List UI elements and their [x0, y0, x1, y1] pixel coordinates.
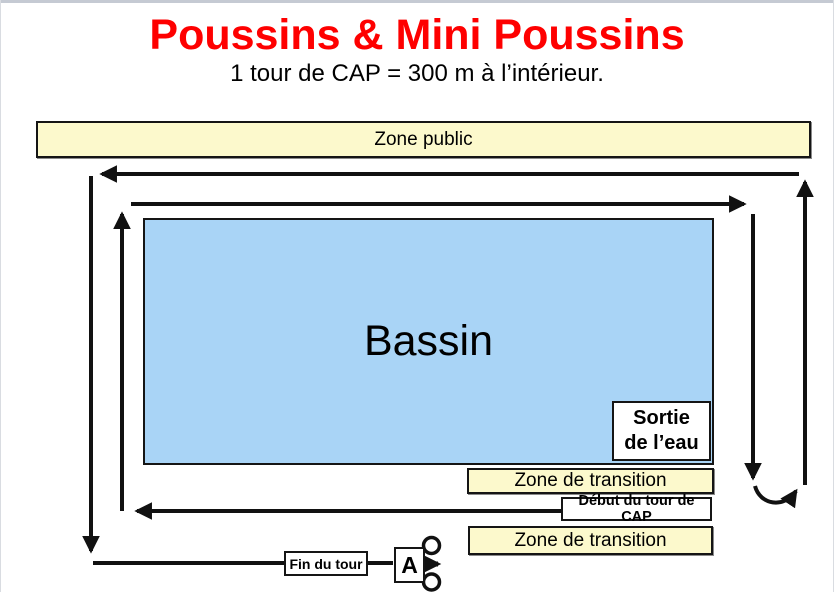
lap-end-box: Fin du tour — [284, 551, 368, 576]
page-subtitle: 1 tour de CAP = 300 m à l’intérieur. — [1, 61, 833, 87]
cap-lap-start-label: Début du tour de CAP — [563, 493, 710, 525]
water-exit-label-line1: Sortie — [633, 406, 690, 431]
transition-zone-bottom-box: Zone de transition — [468, 526, 713, 555]
transition-zone-bottom-label: Zone de transition — [514, 530, 666, 552]
lap-end-label: Fin du tour — [289, 556, 362, 572]
pool-label: Bassin — [364, 317, 493, 366]
course-arrow-uturn — [755, 486, 796, 503]
cap-lap-start-box: Début du tour de CAP — [561, 497, 712, 521]
window-top-strip — [1, 0, 833, 3]
zone-public-box: Zone public — [36, 121, 811, 158]
page-title: Poussins & Mini Poussins — [1, 12, 833, 59]
point-a-box: A — [394, 547, 425, 583]
finish-gate-circle-top — [424, 538, 440, 554]
water-exit-box: Sortie de l’eau — [612, 401, 711, 461]
zone-public-label: Zone public — [374, 129, 472, 151]
water-exit-label-line2: de l’eau — [624, 431, 698, 456]
transition-zone-top-box: Zone de transition — [467, 468, 714, 494]
transition-zone-top-label: Zone de transition — [514, 470, 666, 492]
finish-gate-circle-bottom — [424, 574, 440, 590]
slide-canvas: Poussins & Mini Poussins 1 tour de CAP =… — [0, 0, 834, 592]
point-a-label: A — [401, 552, 418, 579]
